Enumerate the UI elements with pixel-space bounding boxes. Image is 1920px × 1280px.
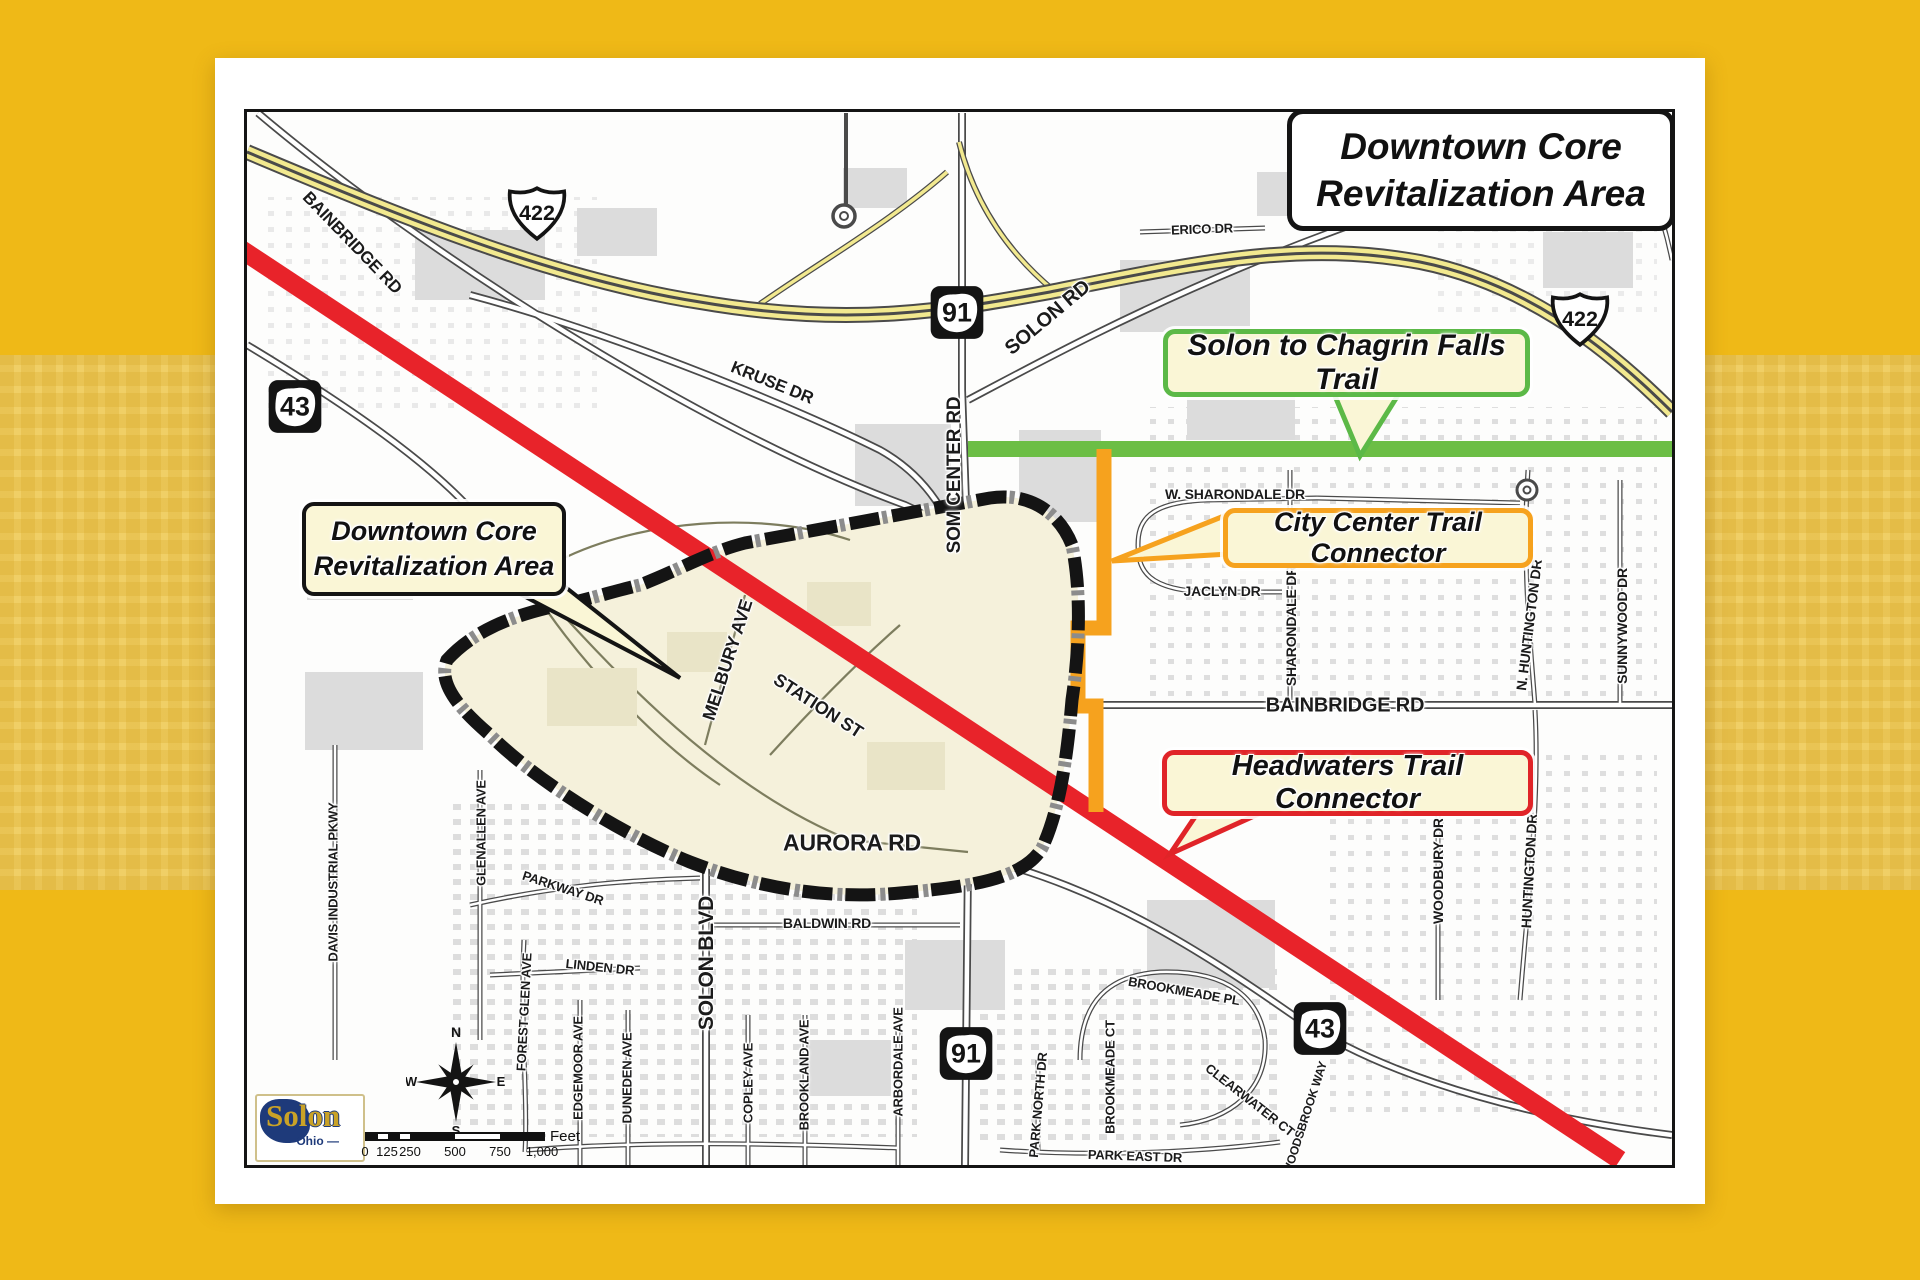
callout-downtown-line1: Downtown Core [331, 514, 536, 549]
compass-rose-icon: N E S W [406, 1025, 506, 1137]
callout-city-center-trail-connector: City Center Trail Connector [1223, 508, 1533, 568]
callout-headwaters-trail-connector: Headwaters Trail Connector [1162, 750, 1533, 816]
map-title: Downtown Core Revitalization Area [1287, 109, 1675, 231]
scale-bar: Feet 01252505007501,000 [365, 1130, 615, 1164]
solon-city-logo: Solon — Ohio — [255, 1094, 365, 1162]
callout-downtown-core: Downtown Core Revitalization Area [302, 502, 566, 596]
solon-chagrin-trail-line [968, 441, 1672, 457]
scale-tick-0: 0 [361, 1144, 368, 1159]
map-title-line2: Revitalization Area [1316, 170, 1646, 217]
callout-downtown-line2: Revitalization Area [314, 549, 555, 584]
callout-city-center-label: City Center Trail Connector [1228, 507, 1528, 569]
scale-tick-500: 500 [444, 1144, 466, 1159]
scale-bar-unit: Feet [550, 1128, 580, 1145]
logo-state-name: — Ohio — [257, 1134, 363, 1148]
logo-city-name: Solon [266, 1098, 340, 1134]
callout-solon-chagrin-trail: Solon to Chagrin Falls Trail [1163, 329, 1530, 397]
compass-w: W [406, 1074, 418, 1089]
compass-n: N [451, 1025, 461, 1040]
page-background: BAINBRIDGE RDKRUSE DRSOLON RDSOM CENTER … [0, 0, 1920, 1280]
scale-tick-125: 125 [376, 1144, 398, 1159]
compass-e: E [497, 1074, 506, 1089]
callout-solon-chagrin-label: Solon to Chagrin Falls Trail [1168, 329, 1525, 397]
base-map [247, 112, 1672, 1165]
scale-tick-1,000: 1,000 [526, 1144, 559, 1159]
map-card: BAINBRIDGE RDKRUSE DRSOLON RDSOM CENTER … [215, 58, 1705, 1204]
scale-bar-rule [365, 1132, 545, 1141]
scale-tick-750: 750 [489, 1144, 511, 1159]
map-title-line1: Downtown Core [1340, 123, 1622, 170]
callout-headwaters-label: Headwaters Trail Connector [1167, 750, 1528, 816]
map-canvas: BAINBRIDGE RDKRUSE DRSOLON RDSOM CENTER … [244, 109, 1675, 1168]
scale-tick-250: 250 [399, 1144, 421, 1159]
